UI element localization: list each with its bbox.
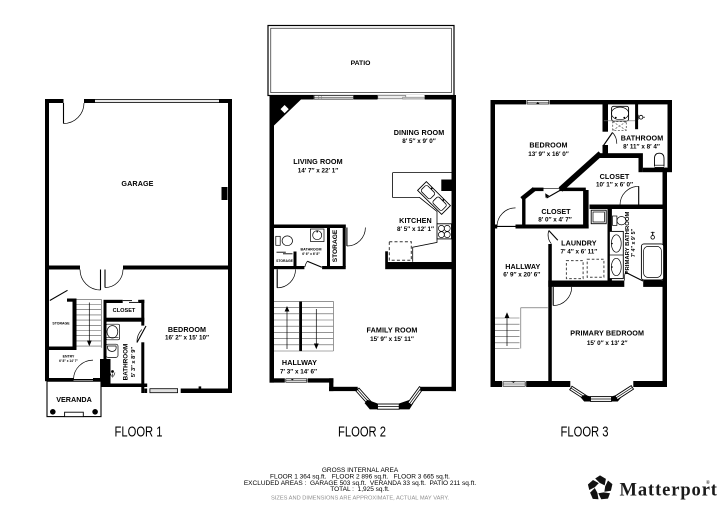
svg-text:6′ 9″ x 20′ 6″: 6′ 9″ x 20′ 6″ — [503, 272, 540, 279]
svg-text:LAUNDRY: LAUNDRY — [561, 238, 597, 247]
svg-text:BATHROOM: BATHROOM — [122, 344, 129, 381]
svg-text:STORAGE: STORAGE — [276, 259, 293, 263]
svg-text:6′ 6″ x 6′ 8″: 6′ 6″ x 6′ 8″ — [302, 252, 320, 256]
svg-text:FAMILY ROOM: FAMILY ROOM — [366, 326, 417, 335]
svg-text:STORAGE: STORAGE — [332, 229, 339, 262]
svg-text:CLOSET: CLOSET — [113, 308, 136, 314]
svg-text:PATIO: PATIO — [351, 60, 371, 67]
svg-text:FLOOR 1: FLOOR 1 — [115, 425, 163, 441]
svg-text:6′ 8″ x 14′ 7″: 6′ 8″ x 14′ 7″ — [59, 359, 78, 363]
svg-text:7′ 4″ x 9′ 5″: 7′ 4″ x 9′ 5″ — [631, 228, 637, 257]
svg-text:7′ 3″ x 14′ 6″: 7′ 3″ x 14′ 6″ — [280, 369, 317, 376]
svg-text:SIZES AND DIMENSIONS ARE APPRO: SIZES AND DIMENSIONS ARE APPROXIMATE, AC… — [271, 496, 449, 502]
svg-text:FLOOR 3: FLOOR 3 — [561, 425, 609, 441]
svg-text:TOTAL : 1,925 sq.ft.: TOTAL : 1,925 sq.ft. — [330, 486, 390, 493]
svg-text:VERANDA: VERANDA — [56, 395, 92, 404]
svg-text:8′ 5″ x 9′ 0″: 8′ 5″ x 9′ 0″ — [402, 138, 436, 145]
svg-text:13′ 9″ x 16′ 0″: 13′ 9″ x 16′ 0″ — [528, 151, 569, 158]
svg-text:16′ 2″ x 15′ 10″: 16′ 2″ x 15′ 10″ — [165, 335, 209, 342]
svg-text:PRIMARY BEDROOM: PRIMARY BEDROOM — [570, 329, 644, 338]
svg-text:DINING ROOM: DINING ROOM — [394, 128, 445, 137]
svg-text:5′ 3″ x 8′ 9″: 5′ 3″ x 8′ 9″ — [131, 347, 137, 378]
svg-text:10′ 1″ x 6′ 0″: 10′ 1″ x 6′ 0″ — [596, 182, 633, 189]
svg-text:CLOSET: CLOSET — [600, 172, 630, 181]
svg-text:HALLWAY: HALLWAY — [282, 358, 317, 367]
svg-text:KITCHEN: KITCHEN — [399, 216, 432, 225]
svg-text:7′ 4″ x 6′ 11″: 7′ 4″ x 6′ 11″ — [561, 249, 598, 256]
svg-text:BATHROOM: BATHROOM — [621, 133, 664, 142]
svg-text:15′ 0″ x 13′ 2″: 15′ 0″ x 13′ 2″ — [587, 340, 628, 347]
svg-text:Matterport: Matterport — [620, 481, 718, 501]
svg-text:BEDROOM: BEDROOM — [529, 141, 567, 150]
svg-text:STORAGE: STORAGE — [52, 322, 70, 326]
svg-text:8′ 5″ x 12′ 1″: 8′ 5″ x 12′ 1″ — [397, 226, 434, 233]
svg-text:FLOOR 2: FLOOR 2 — [338, 425, 386, 441]
svg-text:LIVING ROOM: LIVING ROOM — [293, 157, 342, 166]
svg-text:HALLWAY: HALLWAY — [505, 262, 540, 271]
svg-text:8′ 11″ x 8′ 4″: 8′ 11″ x 8′ 4″ — [623, 144, 660, 151]
svg-text:®: ® — [706, 480, 710, 486]
svg-text:14′ 7″ x 22′ 1″: 14′ 7″ x 22′ 1″ — [298, 168, 339, 175]
svg-text:BEDROOM: BEDROOM — [168, 325, 206, 334]
svg-text:8′ 0″ x 4′ 7″: 8′ 0″ x 4′ 7″ — [538, 217, 572, 224]
svg-text:GARAGE: GARAGE — [121, 179, 153, 188]
svg-text:CLOSET: CLOSET — [541, 207, 571, 216]
svg-text:15′ 9″ x 15′ 11″: 15′ 9″ x 15′ 11″ — [370, 336, 414, 343]
